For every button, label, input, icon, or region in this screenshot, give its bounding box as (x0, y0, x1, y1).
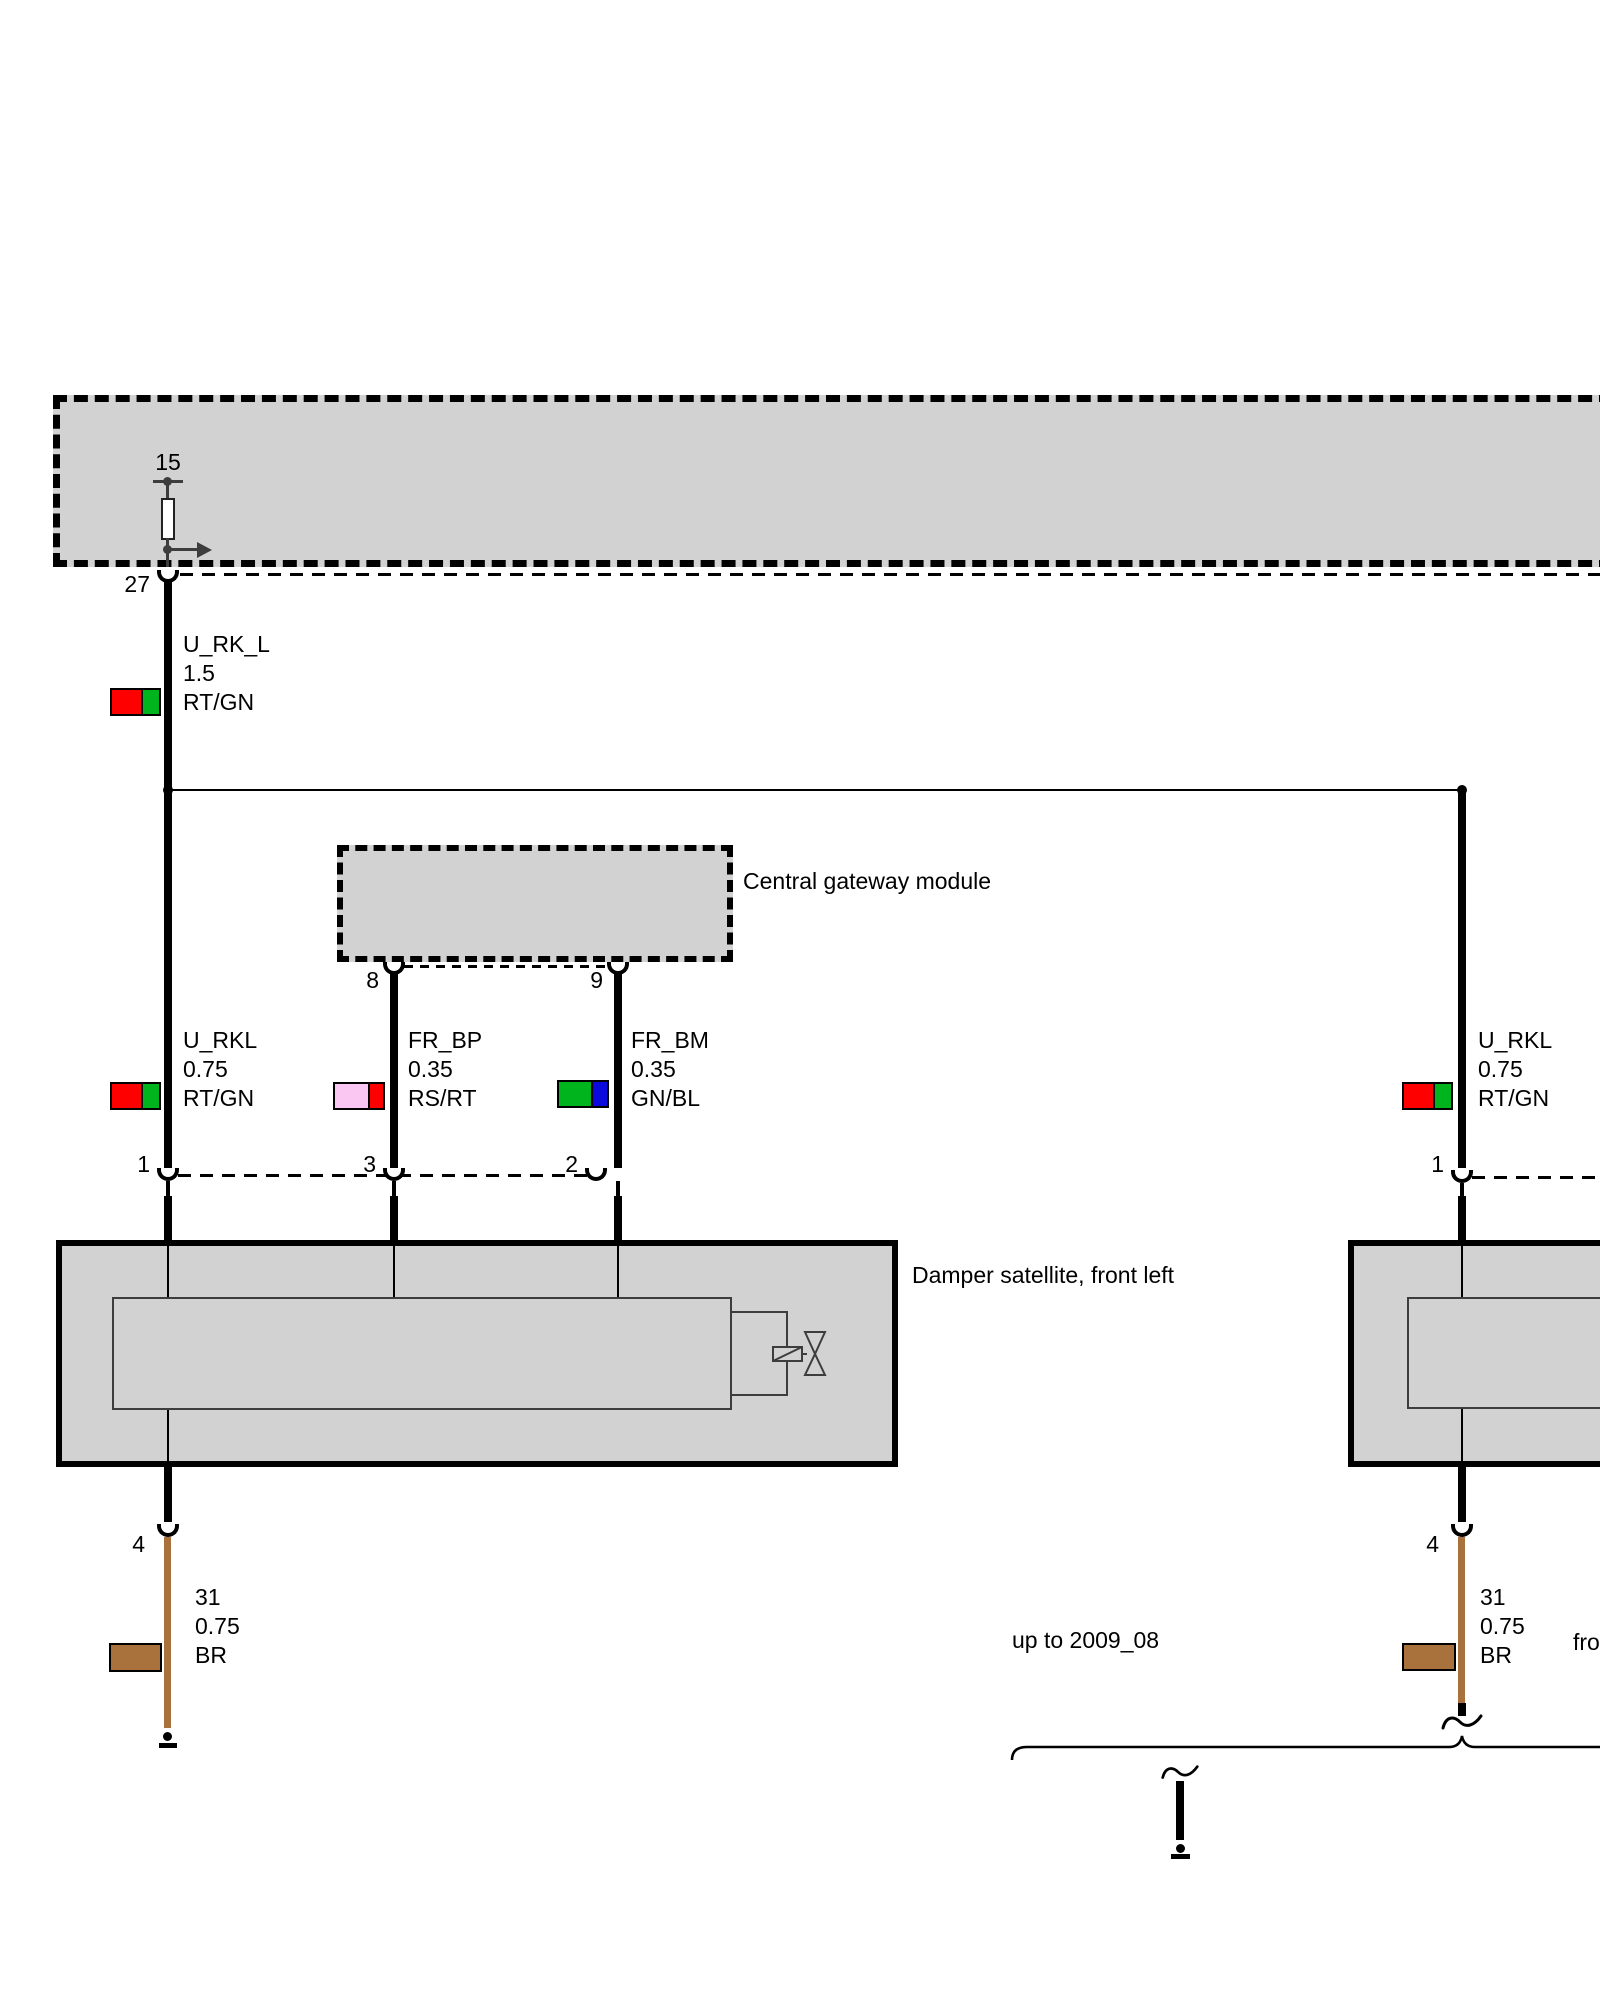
pin-4-right-wire (1458, 1467, 1466, 1522)
wire-color-code: RT/GN (183, 1084, 257, 1113)
fuse-lead-top (166, 481, 169, 498)
internal-lead-r1 (1461, 1246, 1463, 1297)
pin-4-label: 4 (111, 1530, 145, 1559)
pin-1-wire (164, 1196, 172, 1240)
fuse-icon (161, 498, 175, 540)
wire-color-code: GN/BL (631, 1084, 709, 1113)
pin-1-stub (166, 1181, 170, 1197)
swatch-green (1433, 1084, 1451, 1108)
wire-label-u-rkl-left: U_RKL 0.75 RT/GN (183, 1026, 257, 1113)
swatch-red (112, 1084, 141, 1108)
pin-9-label: 9 (565, 966, 603, 995)
pin-1-socket (157, 1168, 179, 1181)
pin-3-label: 3 (342, 1150, 376, 1179)
damper-satellite-left-label: Damper satellite, front left (912, 1261, 1174, 1290)
pin27-lead (166, 550, 169, 567)
damper-right-inner-box (1407, 1297, 1600, 1409)
wire-label-fr-bp: FR_BP 0.35 RS/RT (408, 1026, 482, 1113)
pin-2-stub (616, 1181, 620, 1197)
ground-bar-left (159, 1743, 177, 1748)
wire-name: 31 (195, 1583, 240, 1612)
color-swatch-br-left (109, 1643, 162, 1672)
wire-break-icon-2 (1158, 1763, 1202, 1783)
wire-gauge: 0.35 (408, 1055, 482, 1084)
pin-2-socket (585, 1168, 607, 1181)
internal-lead-1 (167, 1246, 169, 1297)
note-period: up to 2009_08 (1012, 1626, 1159, 1655)
wire-gauge: 1.5 (183, 659, 270, 688)
central-gateway-label: Central gateway module (743, 867, 991, 896)
solenoid-valve-icon (725, 1300, 840, 1405)
swatch-pink (335, 1084, 368, 1108)
color-swatch-rt-gn-2 (110, 1082, 161, 1110)
wire-color-code: BR (1480, 1641, 1525, 1670)
ground-dot-mid (1176, 1844, 1185, 1853)
wire-gauge: 0.75 (1480, 1612, 1525, 1641)
swatch-green (141, 1084, 159, 1108)
ground-wire-mid (1176, 1781, 1184, 1840)
color-swatch-rs-rt (333, 1082, 385, 1110)
junction-dot-left (163, 785, 173, 795)
color-swatch-gn-bl (557, 1080, 609, 1108)
swatch-brown (1404, 1645, 1454, 1669)
internal-lead-r2 (1461, 1409, 1463, 1461)
power-distribution-box (53, 395, 1600, 567)
wire-name: U_RKL (1478, 1026, 1552, 1055)
pin-1-right-wire (1458, 1196, 1466, 1240)
pin-2-label: 2 (544, 1150, 578, 1179)
swatch-red (1404, 1084, 1433, 1108)
pin-3-socket (383, 1168, 405, 1181)
wire-label-u-rk-l: U_RK_L 1.5 RT/GN (183, 630, 270, 717)
ground-bar-mid (1171, 1854, 1190, 1859)
wire-name: U_RKL (183, 1026, 257, 1055)
pin-4-socket (157, 1524, 179, 1537)
wiring-diagram: 15 27 U_RK_L 1.5 RT/GN Central gateway m… (0, 0, 1600, 2000)
internal-lead-2 (617, 1246, 619, 1297)
branch-arrow-line (168, 548, 198, 551)
pin-1-right-socket (1451, 1170, 1473, 1183)
internal-lead-4 (167, 1410, 169, 1461)
pin-27-label: 27 (106, 570, 150, 599)
wire-gauge: 0.75 (195, 1612, 240, 1641)
swatch-blue (591, 1082, 607, 1106)
wire-label-ground-right: 31 0.75 BR (1480, 1583, 1525, 1670)
junction-line (168, 789, 1462, 791)
wire-color-code: RT/GN (183, 688, 270, 717)
group-brace-icon (1005, 1728, 1600, 1768)
main-wire-left (164, 581, 172, 1168)
pin-1-right-stub (1460, 1183, 1464, 1197)
wire-fr-bp (390, 974, 398, 1168)
pin-8-label: 8 (341, 966, 379, 995)
wire-fr-bm (614, 974, 622, 1168)
wire-color-code: RS/RT (408, 1084, 482, 1113)
pin-3-stub (392, 1181, 396, 1197)
wire-color-code: RT/GN (1478, 1084, 1552, 1113)
color-swatch-br-right (1402, 1643, 1456, 1671)
pin-3-wire (390, 1196, 398, 1240)
color-swatch-rt-gn (110, 688, 161, 716)
pin-4-right-socket (1451, 1524, 1473, 1537)
wire-color-code: BR (195, 1641, 240, 1670)
ground-dot-left (163, 1732, 172, 1741)
wire-name: FR_BP (408, 1026, 482, 1055)
pin-1-right-label: 1 (1410, 1150, 1444, 1179)
main-wire-right (1458, 790, 1466, 1168)
note-right-clipped: fro (1573, 1628, 1600, 1657)
wire-gauge: 0.75 (1478, 1055, 1552, 1084)
connector-line-top (180, 573, 1600, 576)
wire-gauge: 0.75 (183, 1055, 257, 1084)
swatch-brown (111, 1645, 160, 1670)
wire-label-ground-left: 31 0.75 BR (195, 1583, 240, 1670)
swatch-red (112, 690, 141, 714)
wire-label-u-rkl-right: U_RKL 0.75 RT/GN (1478, 1026, 1552, 1113)
swatch-green (141, 690, 159, 714)
pin-1-label: 1 (116, 1150, 150, 1179)
wire-gauge: 0.35 (631, 1055, 709, 1084)
damper-connector-line-right (1472, 1176, 1600, 1179)
internal-lead-3 (393, 1246, 395, 1297)
ground-wire-left (164, 1537, 171, 1728)
pin-4-right-label: 4 (1405, 1530, 1439, 1559)
terminal-15-label: 15 (140, 448, 196, 477)
swatch-green (559, 1082, 591, 1106)
damper-inner-box (112, 1297, 732, 1410)
swatch-red (368, 1084, 383, 1108)
pin-4-wire (164, 1467, 172, 1522)
color-swatch-rt-gn-right (1402, 1082, 1453, 1110)
pin-2-wire (614, 1196, 622, 1240)
wire-name: U_RK_L (183, 630, 270, 659)
wire-name: 31 (1480, 1583, 1525, 1612)
central-gateway-box (337, 845, 733, 962)
ground-wire-right (1458, 1537, 1465, 1703)
branch-arrow-icon (197, 542, 212, 558)
wire-name: FR_BM (631, 1026, 709, 1055)
wire-label-fr-bm: FR_BM 0.35 GN/BL (631, 1026, 709, 1113)
